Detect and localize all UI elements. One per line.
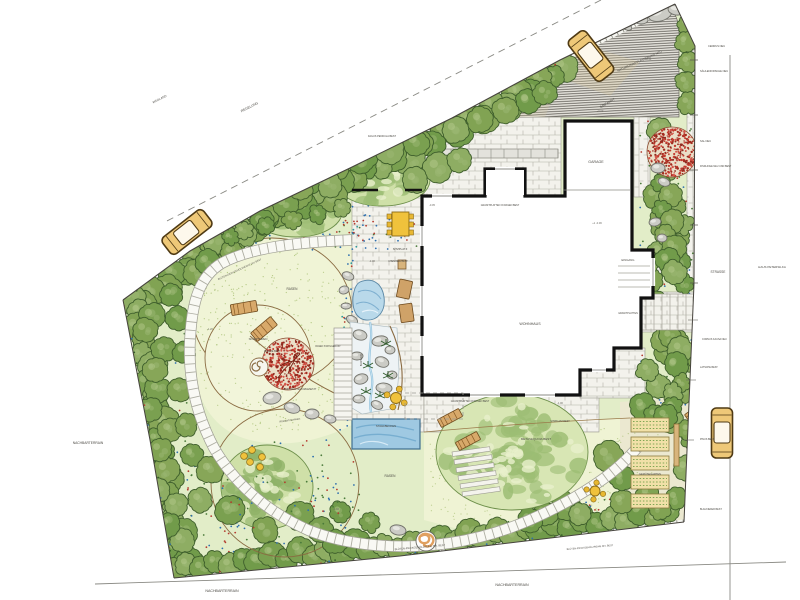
svg-text:SKULPTUREN: SKULPTUREN bbox=[249, 337, 268, 341]
svg-text:-1.46: -1.46 bbox=[333, 507, 339, 511]
svg-text:+0.00: +0.00 bbox=[597, 109, 604, 113]
svg-text:NACHBARTERRAIN: NACHBARTERRAIN bbox=[73, 441, 104, 445]
svg-text:-1.00: -1.00 bbox=[369, 259, 375, 263]
svg-text:GRANITPLATTEN IN RASEN BEST: GRANITPLATTEN IN RASEN BEST bbox=[451, 400, 490, 403]
svg-text:GARAGE: GARAGE bbox=[588, 160, 604, 164]
svg-text:NACHBARTERRAIN: NACHBARTERRAIN bbox=[205, 589, 239, 593]
svg-text:PINUS BEST: PINUS BEST bbox=[700, 438, 715, 441]
svg-text:FAGUS PENDULA BEST: FAGUS PENDULA BEST bbox=[368, 135, 397, 138]
svg-text:RASEN STAHLGERÜST: RASEN STAHLGERÜST bbox=[315, 345, 341, 348]
svg-text:RASEN: RASEN bbox=[385, 474, 397, 478]
svg-text:FINDLINGE NEU UND BEST: FINDLINGE NEU UND BEST bbox=[700, 165, 732, 168]
svg-text:SAL NEU: SAL NEU bbox=[700, 139, 711, 143]
svg-text:RASEN: RASEN bbox=[287, 287, 299, 291]
svg-text:BLAUKIEFER BEST: BLAUKIEFER BEST bbox=[700, 508, 722, 511]
svg-text:HAUS PETERSILKA: HAUS PETERSILKA bbox=[758, 265, 786, 269]
svg-text:GEMÜSEGARTEN: GEMÜSEGARTEN bbox=[639, 472, 661, 476]
svg-text:BACHLAUF: BACHLAUF bbox=[360, 353, 363, 366]
svg-text:NACHBARTERRAIN: NACHBARTERRAIN bbox=[495, 583, 529, 587]
svg-text:GRANITPLATTEN IN RASEN BEST: GRANITPLATTEN IN RASEN BEST bbox=[481, 204, 520, 207]
svg-text:FINDLINGE NEU/UMGESETZT: FINDLINGE NEU/UMGESETZT bbox=[284, 389, 317, 391]
svg-text:EINGANG: EINGANG bbox=[622, 258, 635, 262]
svg-text:-1.00: -1.00 bbox=[557, 401, 563, 405]
svg-text:SITZPLATZ: SITZPLATZ bbox=[393, 247, 408, 251]
svg-text:CHEMINEE BEST: CHEMINEE BEST bbox=[388, 260, 408, 263]
svg-text:ROBINIE BEST: ROBINIE BEST bbox=[264, 351, 281, 353]
svg-text:-0.05: -0.05 bbox=[429, 203, 435, 207]
svg-text:GRANITPLATTEN: GRANITPLATTEN bbox=[618, 312, 638, 315]
svg-text:STAHLBECKEN: STAHLBECKEN bbox=[376, 424, 396, 428]
svg-text:CEDRUS NEU: CEDRUS NEU bbox=[708, 44, 725, 48]
svg-text:CORNUS KAUSA NEU: CORNUS KAUSA NEU bbox=[702, 338, 727, 341]
svg-text:STRASSE: STRASSE bbox=[711, 270, 726, 274]
svg-text:-1.20: -1.20 bbox=[207, 327, 213, 331]
svg-text:SITZPLATZ BEST: SITZPLATZ BEST bbox=[550, 420, 570, 423]
svg-text:SÄULENKIRSCHE NEU: SÄULENKIRSCHE NEU bbox=[700, 69, 728, 73]
svg-text:+1 -0.06: +1 -0.06 bbox=[592, 221, 602, 225]
svg-text:LATSCHE BEST: LATSCHE BEST bbox=[700, 366, 718, 369]
svg-text:METASEQUOIA BEST: METASEQUOIA BEST bbox=[521, 437, 551, 441]
svg-text:+0.41: +0.41 bbox=[645, 57, 652, 61]
svg-text:WOHNHAUS: WOHNHAUS bbox=[519, 322, 541, 326]
